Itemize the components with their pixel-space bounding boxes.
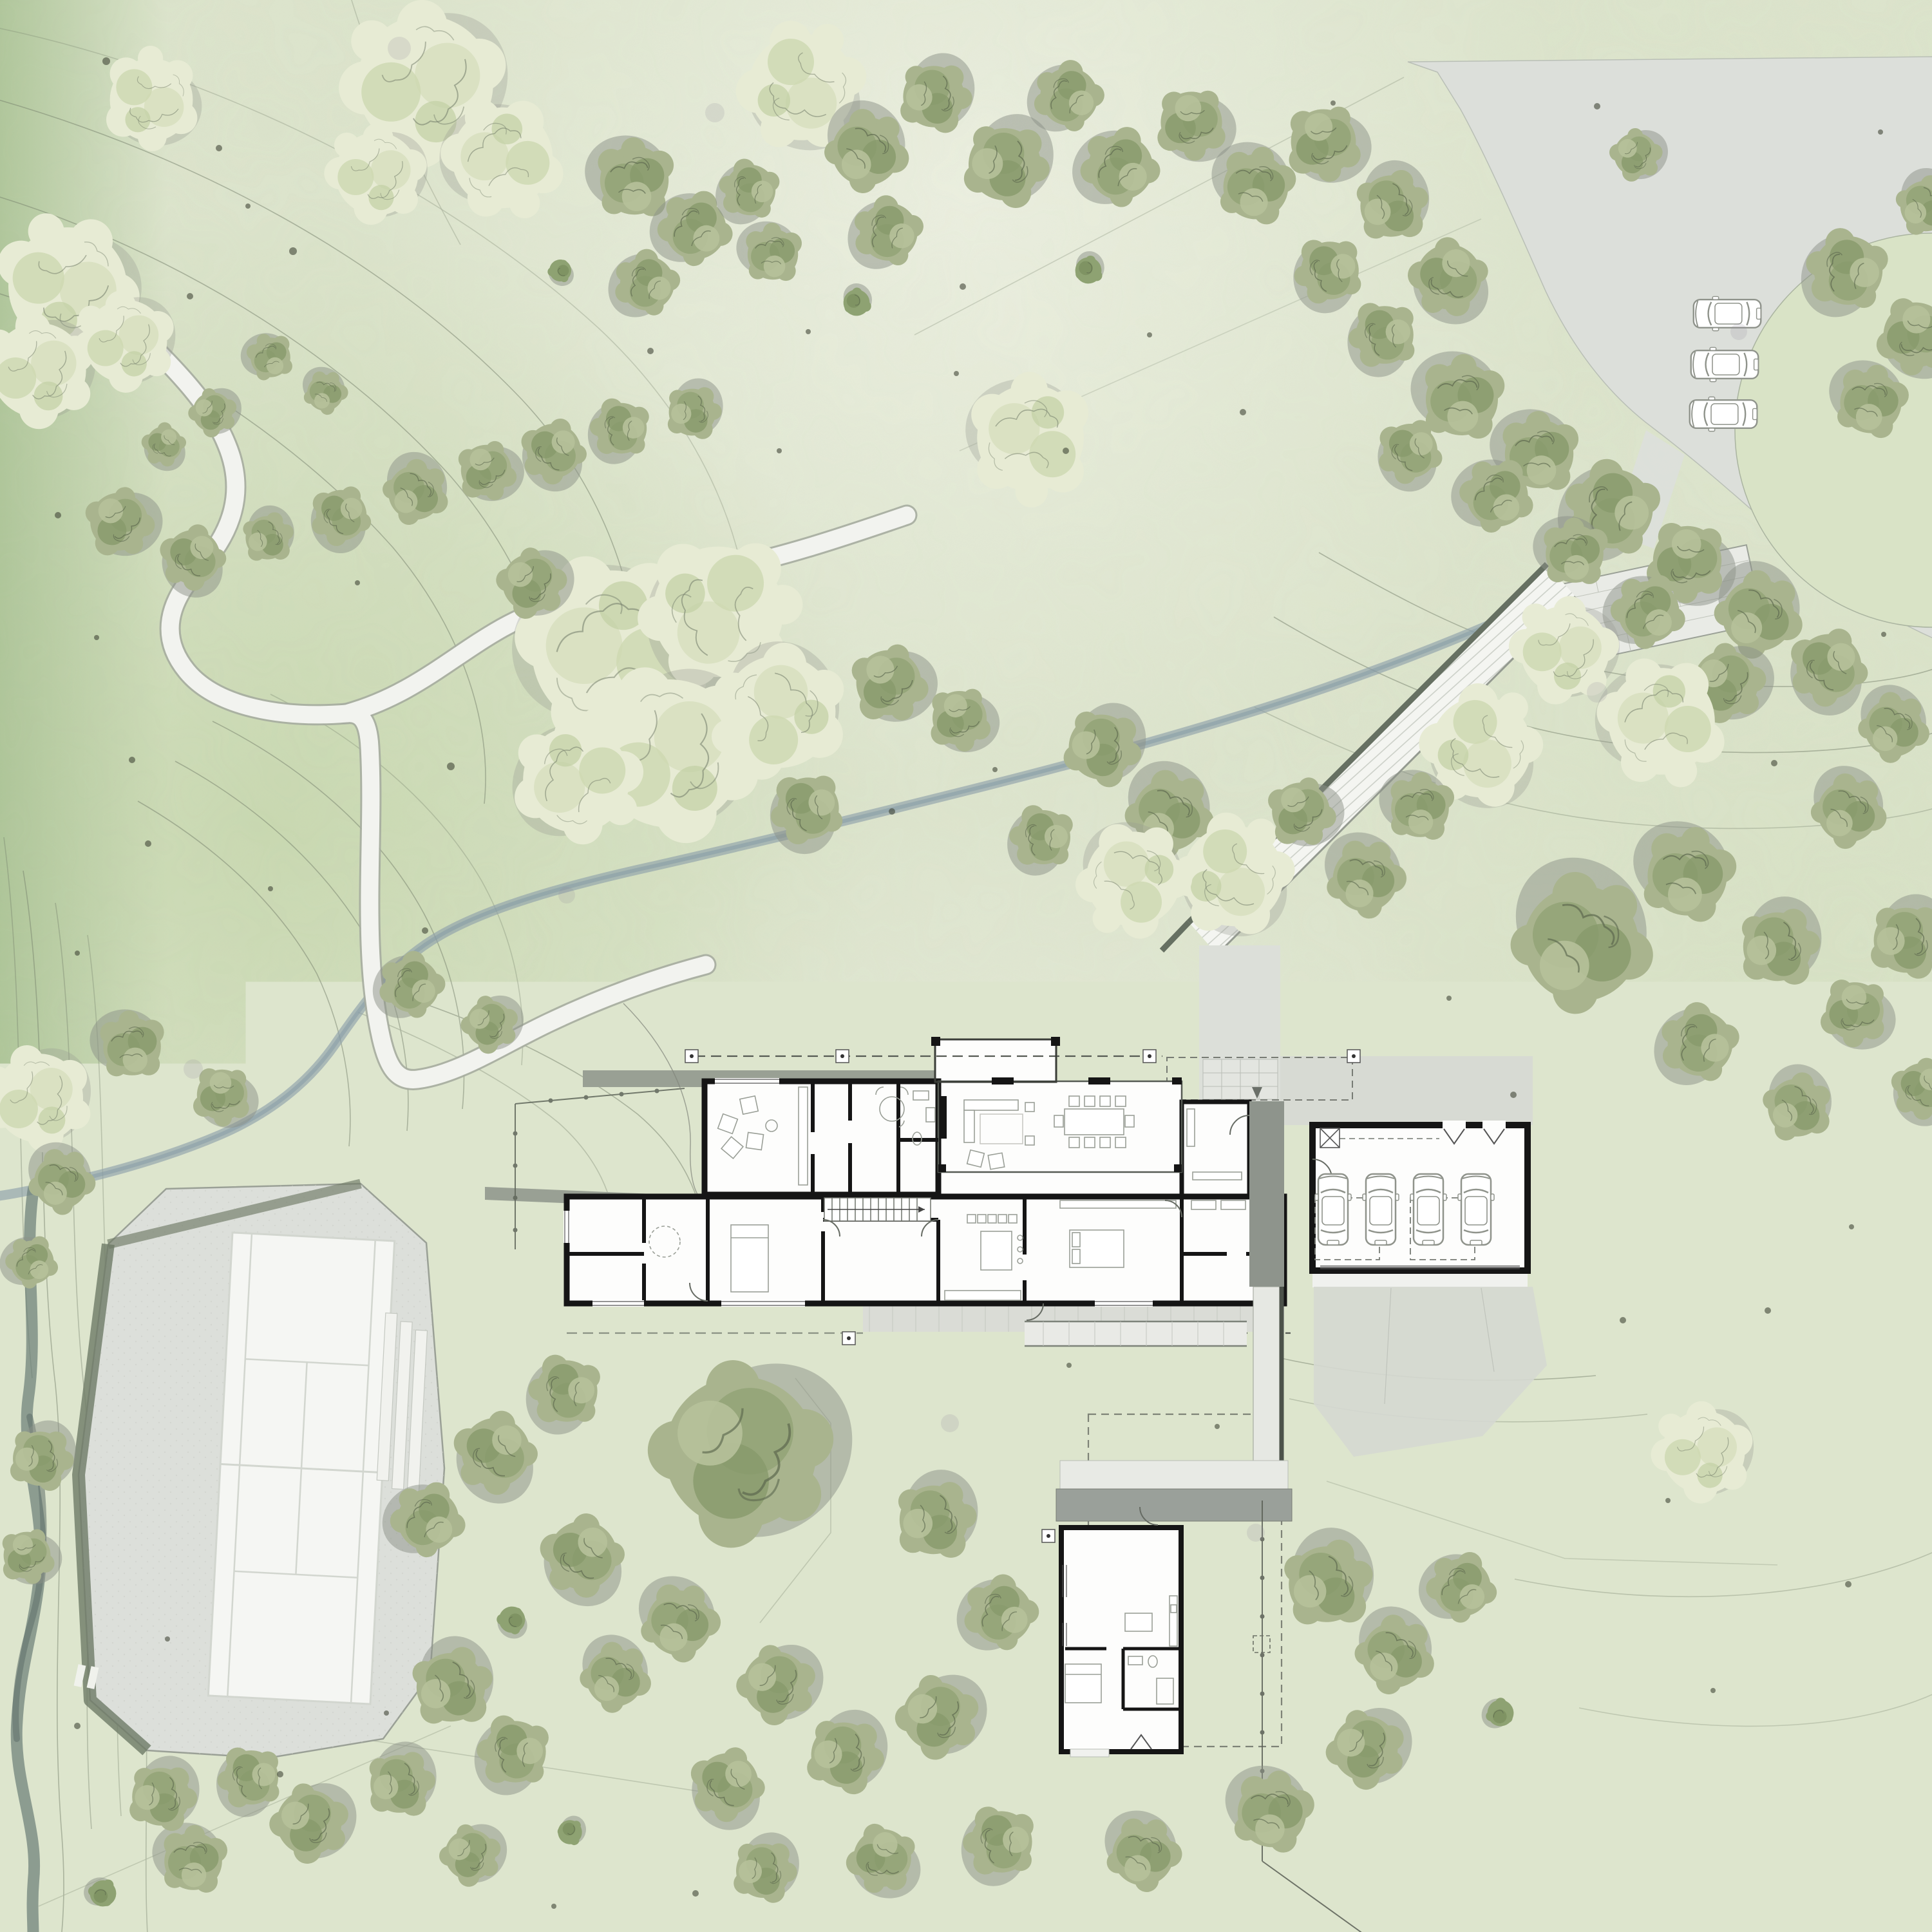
skylight-marker: [1320, 1128, 1340, 1148]
tennis-court: [79, 1184, 444, 1758]
court-steps: [376, 1313, 428, 1498]
guest-house: [1061, 1507, 1181, 1757]
parking-cars: [1690, 296, 1761, 431]
court-markings: [208, 1233, 394, 1704]
scale-label-32ft: 32': [1853, 1817, 1877, 1837]
entry-walk-roof: [1249, 1101, 1284, 1287]
breezeway-terrace: [1060, 1461, 1288, 1489]
scale-label-16ft: 16': [1788, 1817, 1812, 1837]
stair: [824, 1198, 931, 1221]
scale-label-4ft: 4': [1734, 1817, 1748, 1837]
scale-label-8ft: 8': [1755, 1817, 1769, 1837]
motor-court: [1280, 1056, 1533, 1125]
breezeway-roof: [1056, 1489, 1292, 1521]
site-plan-canvas: 4' 8' 16' 32': [0, 0, 1932, 1932]
south-walk-band: [1025, 1321, 1247, 1346]
site-plan-drawing: 4' 8' 16' 32': [0, 0, 1932, 1932]
entry-plaza-tiles: [1203, 1059, 1278, 1099]
